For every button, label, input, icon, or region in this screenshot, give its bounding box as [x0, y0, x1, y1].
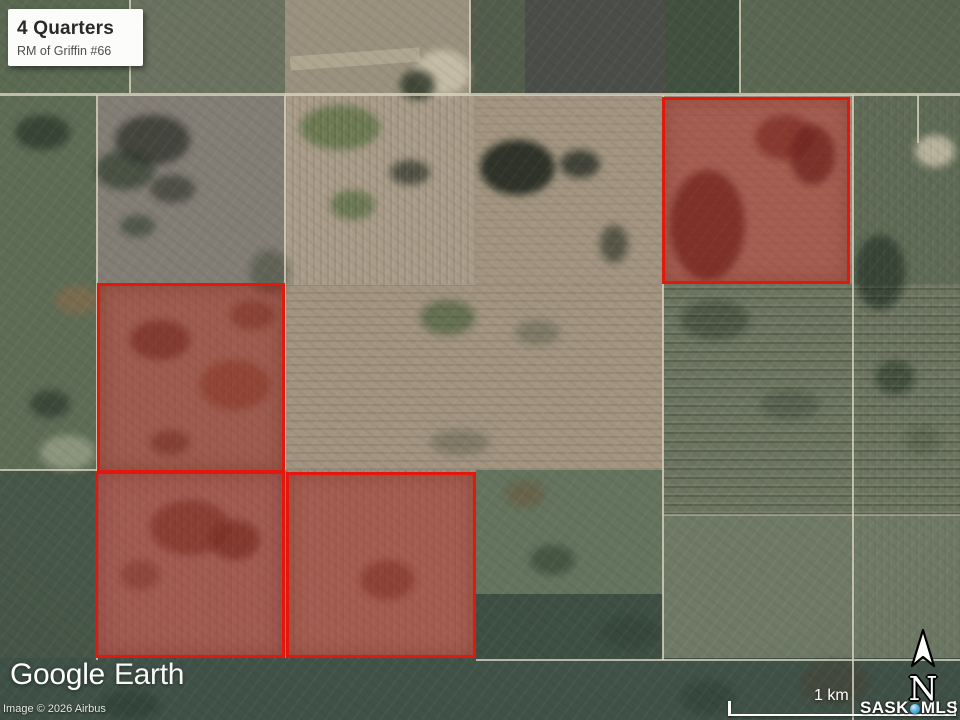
google-earth-logo: GoogleEarth — [10, 658, 184, 692]
terrain-blob — [680, 680, 735, 715]
terrain-blob — [150, 175, 195, 203]
north-arrow-icon — [909, 629, 937, 669]
page-title: 4 Quarters — [17, 18, 133, 39]
field — [470, 0, 525, 95]
road — [739, 0, 741, 93]
field — [525, 0, 665, 95]
google-wordmark: Google — [10, 658, 105, 691]
highlighted-parcel-quarter-south — [286, 472, 476, 658]
road — [663, 514, 960, 516]
road — [476, 659, 960, 661]
road — [852, 95, 854, 720]
map-canvas: 4 Quarters RM of Griffin #66 GoogleEarth… — [0, 0, 960, 720]
crop-rows — [285, 95, 475, 285]
title-card: 4 Quarters RM of Griffin #66 — [8, 9, 143, 66]
terrain-blob — [120, 215, 155, 237]
terrain-blob — [600, 615, 660, 650]
highlighted-parcel-quarter-northeast — [662, 97, 850, 284]
crop-rows — [475, 95, 663, 285]
terrain-blob — [530, 545, 575, 575]
earth-wordmark: Earth — [114, 658, 184, 691]
field — [740, 0, 960, 95]
farmyard — [40, 435, 95, 470]
terrain-blob — [100, 690, 160, 720]
compass: N — [903, 629, 943, 704]
imagery-copyright: Image © 2026 Airbus — [3, 703, 106, 715]
road — [0, 93, 960, 96]
road — [469, 0, 471, 93]
sask-label: SASK — [860, 698, 909, 718]
field — [130, 0, 285, 95]
terrain-blob — [115, 115, 190, 165]
scale-bar-label: 1 km — [814, 687, 849, 705]
crop-rows — [285, 285, 663, 470]
road — [917, 95, 919, 143]
field — [665, 0, 740, 95]
page-subtitle: RM of Griffin #66 — [17, 45, 133, 58]
north-label: N — [903, 674, 943, 704]
road — [0, 469, 97, 471]
terrain-blob — [55, 285, 100, 315]
crop-rows — [853, 95, 960, 660]
terrain-blob — [30, 390, 70, 418]
highlighted-parcel-quarter-west — [97, 283, 285, 473]
terrain-blob — [15, 115, 70, 150]
terrain-blob — [505, 480, 545, 508]
highlighted-parcel-quarter-southwest — [95, 471, 285, 658]
